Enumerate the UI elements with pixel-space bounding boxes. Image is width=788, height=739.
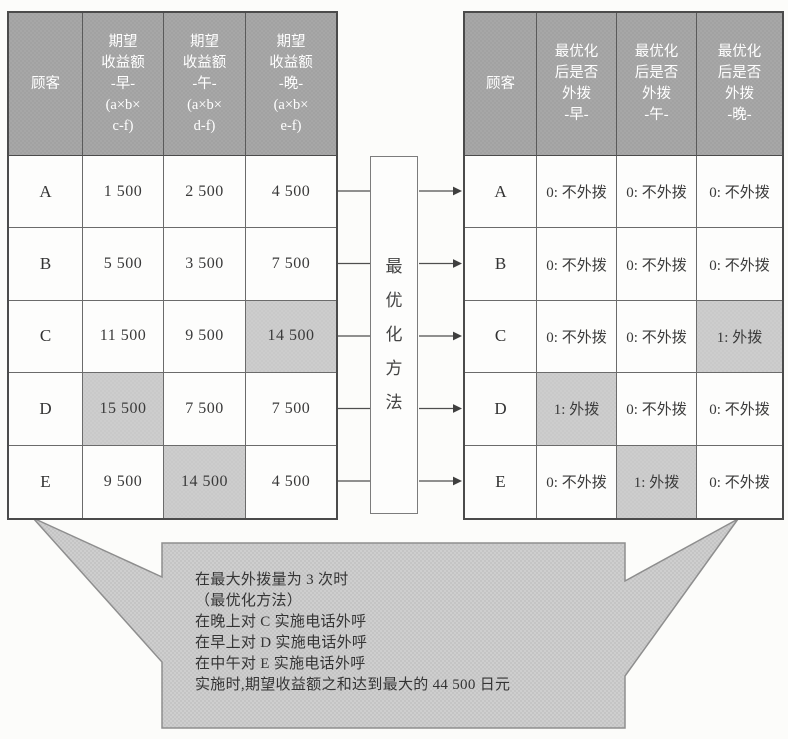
corner-header-cell: 顾客 <box>9 13 83 156</box>
value-cell: 0: 不外拨 <box>697 156 782 228</box>
value-cell: 4 500 <box>246 446 336 518</box>
column-header: 最优化 后是否 外拨 -早- <box>537 13 617 156</box>
value-cell: 1: 外拨 <box>537 373 617 445</box>
row-label: A <box>9 156 83 228</box>
value-cell: 7 500 <box>246 373 336 445</box>
value-cell: 9 500 <box>83 446 164 518</box>
value-cell: 1: 外拨 <box>697 301 782 373</box>
column-header: 最优化 后是否 外拨 -晚- <box>697 13 782 156</box>
value-cell: 1 500 <box>83 156 164 228</box>
value-cell: 15 500 <box>83 373 164 445</box>
optimized-dial-decision-table: 顾客 最优化 后是否 外拨 -早- 最优化 后是否 外拨 -午- 最优化 后是否… <box>463 11 784 520</box>
value-cell: 0: 不外拨 <box>697 373 782 445</box>
value-cell: 0: 不外拨 <box>697 446 782 518</box>
callout-summary-text: 在最大外拨量为 3 次时 （最优化方法） 在晚上对 C 实施电话外呼 在早上对 … <box>195 570 615 696</box>
optimization-method-box: 最 优 化 方 法 <box>370 156 418 514</box>
column-header: 期望 收益额 -晚- (a×b× e-f) <box>246 13 336 156</box>
row-label: C <box>465 301 537 373</box>
value-cell: 0: 不外拨 <box>617 228 697 300</box>
corner-header-cell: 顾客 <box>465 13 537 156</box>
column-header: 最优化 后是否 外拨 -午- <box>617 13 697 156</box>
value-cell: 14 500 <box>164 446 246 518</box>
row-label: D <box>465 373 537 445</box>
figure-canvas: 顾客 期望 收益额 -早- (a×b× c-f) 期望 收益额 -午- (a×b… <box>0 0 788 739</box>
value-cell: 0: 不外拨 <box>537 446 617 518</box>
value-cell: 4 500 <box>246 156 336 228</box>
column-header: 期望 收益额 -早- (a×b× c-f) <box>83 13 164 156</box>
value-cell: 0: 不外拨 <box>617 373 697 445</box>
value-cell: 7 500 <box>164 373 246 445</box>
value-cell: 0: 不外拨 <box>537 301 617 373</box>
value-cell: 11 500 <box>83 301 164 373</box>
value-cell: 0: 不外拨 <box>537 156 617 228</box>
value-cell: 0: 不外拨 <box>617 156 697 228</box>
value-cell: 3 500 <box>164 228 246 300</box>
value-cell: 14 500 <box>246 301 336 373</box>
row-label: B <box>9 228 83 300</box>
value-cell: 9 500 <box>164 301 246 373</box>
value-cell: 0: 不外拨 <box>697 228 782 300</box>
value-cell: 5 500 <box>83 228 164 300</box>
value-cell: 1: 外拨 <box>617 446 697 518</box>
value-cell: 0: 不外拨 <box>537 228 617 300</box>
row-label: A <box>465 156 537 228</box>
row-label: D <box>9 373 83 445</box>
row-label: B <box>465 228 537 300</box>
expected-revenue-table: 顾客 期望 收益额 -早- (a×b× c-f) 期望 收益额 -午- (a×b… <box>7 11 338 520</box>
value-cell: 0: 不外拨 <box>617 301 697 373</box>
value-cell: 7 500 <box>246 228 336 300</box>
row-label: E <box>465 446 537 518</box>
column-header: 期望 收益额 -午- (a×b× d-f) <box>164 13 246 156</box>
row-label: E <box>9 446 83 518</box>
value-cell: 2 500 <box>164 156 246 228</box>
row-label: C <box>9 301 83 373</box>
